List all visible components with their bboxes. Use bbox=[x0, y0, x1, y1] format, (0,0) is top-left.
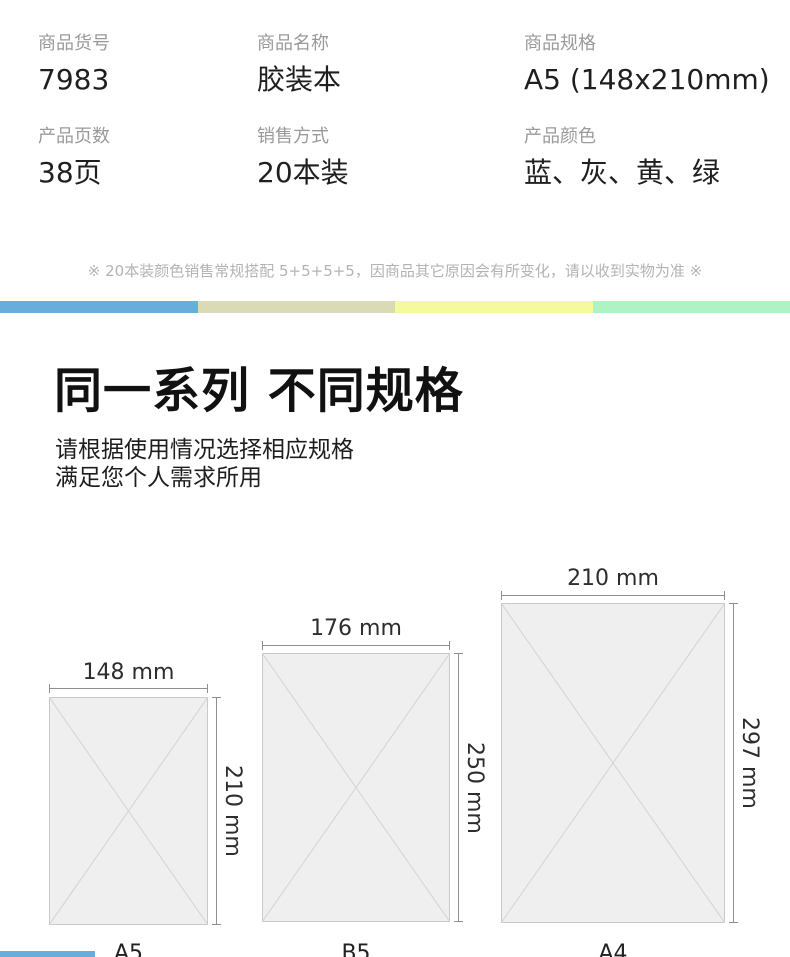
divider-stripe bbox=[0, 301, 790, 313]
spec-colors: 产品颜色 蓝、灰、黄、绿 bbox=[524, 126, 720, 190]
spec-value: 胶装本 bbox=[257, 63, 341, 97]
bottom-stripe-blue bbox=[0, 951, 95, 957]
a4-size-name: A4 bbox=[501, 941, 725, 957]
spec-value: 蓝、灰、黄、绿 bbox=[524, 156, 720, 190]
b5-height-dimension-line bbox=[458, 653, 459, 922]
a5-height-dimension-line bbox=[216, 697, 217, 925]
a4-width-dimension-line bbox=[501, 595, 725, 596]
subtitle-line-2: 满足您个人需求所用 bbox=[55, 464, 354, 492]
color-combination-note: ※ 20本装颜色销售常规搭配 5+5+5+5，因商品其它原因会有所变化，请以收到… bbox=[0, 261, 790, 281]
a4-paper-diagram bbox=[501, 603, 725, 923]
spec-size: 商品规格 A5 (148x210mm) bbox=[524, 33, 770, 97]
a5-width-dimension-label: 148 mm bbox=[49, 660, 208, 685]
stripe-segment-green bbox=[593, 301, 790, 313]
spec-product-name: 商品名称 胶装本 bbox=[257, 33, 341, 97]
a4-height-dimension-label: 297 mm bbox=[737, 603, 762, 923]
spec-item-number: 商品货号 7983 bbox=[38, 33, 110, 97]
spec-label: 产品颜色 bbox=[524, 126, 720, 148]
subtitle-line-1: 请根据使用情况选择相应规格 bbox=[55, 436, 354, 464]
a5-width-dimension-line bbox=[49, 688, 208, 689]
spec-page-count: 产品页数 38页 bbox=[38, 126, 110, 190]
a5-height-dimension-label: 210 mm bbox=[220, 697, 245, 925]
spec-value: 7983 bbox=[38, 63, 110, 97]
spec-label: 商品货号 bbox=[38, 33, 110, 55]
b5-size-name: B5 bbox=[262, 941, 450, 957]
stripe-segment-blue bbox=[0, 301, 198, 313]
spec-label: 商品规格 bbox=[524, 33, 770, 55]
section-subtitle: 请根据使用情况选择相应规格 满足您个人需求所用 bbox=[55, 436, 354, 492]
spec-label: 商品名称 bbox=[257, 33, 341, 55]
b5-width-dimension-line bbox=[262, 645, 450, 646]
spec-value: 20本装 bbox=[257, 156, 349, 190]
b5-height-dimension-label: 250 mm bbox=[462, 653, 487, 922]
product-spec-page: 商品货号 7983 商品名称 胶装本 商品规格 A5 (148x210mm) 产… bbox=[0, 0, 790, 957]
section-title: 同一系列 不同规格 bbox=[54, 363, 464, 419]
a4-height-dimension-line bbox=[733, 603, 734, 923]
spec-sale-method: 销售方式 20本装 bbox=[257, 126, 349, 190]
spec-label: 销售方式 bbox=[257, 126, 349, 148]
b5-paper-diagram bbox=[262, 653, 450, 922]
stripe-segment-yellow bbox=[395, 301, 593, 313]
a5-paper-diagram bbox=[49, 697, 208, 925]
stripe-segment-beige bbox=[198, 301, 396, 313]
spec-value: 38页 bbox=[38, 156, 110, 190]
b5-width-dimension-label: 176 mm bbox=[262, 616, 450, 641]
spec-label: 产品页数 bbox=[38, 126, 110, 148]
spec-value: A5 (148x210mm) bbox=[524, 63, 770, 97]
a4-width-dimension-label: 210 mm bbox=[501, 566, 725, 591]
